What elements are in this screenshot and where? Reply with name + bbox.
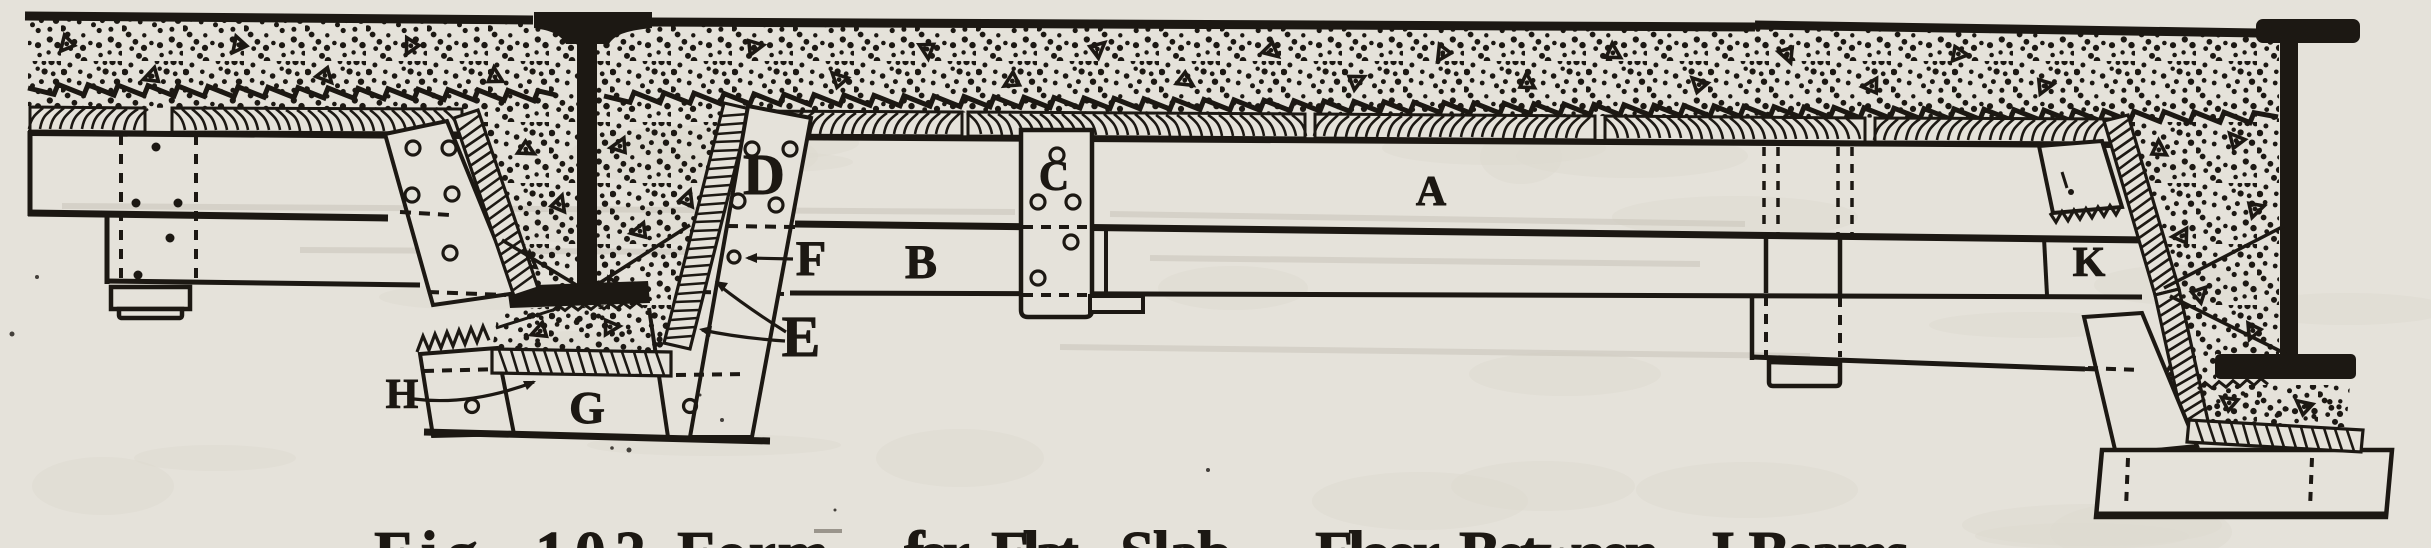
svg-text:H: H [386, 372, 419, 418]
svg-text:F: F [796, 230, 827, 286]
svg-text:Floor: Floor [1315, 520, 1440, 548]
svg-text:Flat: Flat [991, 520, 1079, 548]
svg-text:G: G [569, 382, 605, 433]
svg-text:B: B [905, 236, 937, 289]
svg-text:Between: Between [1459, 520, 1659, 548]
svg-text:Form: Form [677, 520, 829, 548]
svg-text:for: for [904, 520, 970, 548]
svg-text:K: K [2073, 240, 2106, 286]
svg-text:I-Beams.: I-Beams. [1711, 520, 1921, 548]
svg-text:E: E [782, 304, 821, 369]
svg-text:Slab: Slab [1120, 520, 1232, 548]
svg-text:C: C [1039, 154, 1069, 200]
svg-text:D: D [743, 142, 785, 207]
svg-text:A: A [1416, 169, 1447, 215]
